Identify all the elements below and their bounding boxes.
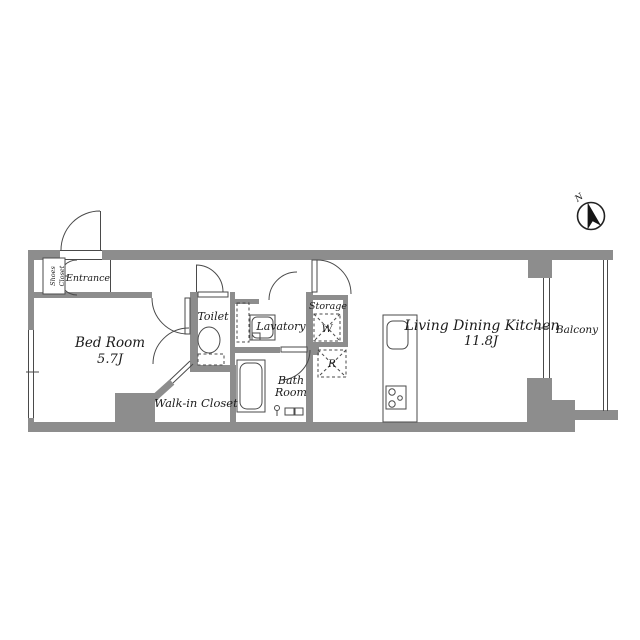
- lavatory-door-swing-icon: [269, 272, 297, 300]
- vanity-counter-icon: [237, 303, 249, 342]
- entrance-door-swing-icon: [61, 211, 101, 250]
- toilet-label: Toilet: [197, 310, 229, 323]
- toilet-door-threshold: [198, 292, 228, 297]
- ldk-door-swing-icon: [317, 260, 351, 294]
- walk-in-closet-door-leaf: [170, 361, 193, 383]
- ldk-size-label: 11.8J: [464, 334, 499, 349]
- ldk-label: Living Dining Kitchen: [404, 318, 560, 334]
- balcony-rail-icon: [604, 260, 608, 411]
- wall-bottom: [28, 422, 575, 432]
- bath-counter-icon-2: [295, 408, 303, 415]
- toilet-door-swing-icon: [196, 265, 223, 292]
- toilet-tank-icon: [198, 354, 224, 365]
- bath-door-leaf: [281, 347, 307, 352]
- toilet-bowl-icon: [198, 327, 220, 353]
- bathroom-label-line2: Room: [274, 386, 307, 399]
- wall-balcony-bottom-bar: [575, 410, 618, 420]
- wall-balcony-step: [552, 400, 575, 432]
- wall-balcony-top-block: [528, 260, 552, 278]
- wall-toilet-left: [190, 292, 198, 367]
- storage-label: Storage: [309, 301, 347, 312]
- wall-toilet-right: [230, 292, 235, 372]
- wall-storage-top: [310, 295, 348, 300]
- wall-closet-bump: [115, 393, 155, 422]
- wall-storage-bottom: [310, 342, 348, 347]
- compass-north-label: N: [573, 191, 587, 205]
- floor-plan-page: Bed Room 5.7J Living Dining Kitchen 11.8…: [0, 0, 640, 640]
- balcony-label: Balcony: [555, 324, 599, 336]
- wall-top: [28, 250, 613, 260]
- lavatory-label: Lavatory: [255, 320, 306, 333]
- shoes-closet-label-line2: Closet: [58, 265, 66, 286]
- compass: N: [573, 191, 605, 229]
- bath-faucet: [275, 406, 304, 417]
- wall-bath-left: [230, 365, 236, 422]
- ldk-door-leaf: [312, 260, 317, 292]
- bathtub: [237, 360, 265, 412]
- bedroom-label: Bed Room: [74, 335, 145, 351]
- wall-ldk-right-block: [527, 378, 552, 432]
- labels: Bed Room 5.7J Living Dining Kitchen 11.8…: [49, 265, 599, 410]
- entrance-label: Entrance: [65, 273, 111, 284]
- bathtub-outer-icon: [237, 360, 265, 412]
- wall-toilet-bottom: [190, 365, 235, 372]
- wall-lavatory-bath: [235, 347, 280, 353]
- washer-symbol: W: [322, 323, 334, 335]
- bath-counter-icon-1: [285, 408, 294, 415]
- bedroom-size-label: 5.7J: [97, 352, 124, 367]
- bath-faucet-icon: [275, 406, 280, 411]
- toilet-fixture: [198, 327, 224, 365]
- floor-plan: Bed Room 5.7J Living Dining Kitchen 11.8…: [0, 0, 640, 640]
- shoes-closet-label-line1: Shoes: [49, 265, 57, 285]
- walk-in-closet-label: Walk-in Closet: [154, 396, 238, 410]
- entrance-door-gap: [60, 250, 102, 260]
- refrigerator-symbol: R: [327, 358, 336, 370]
